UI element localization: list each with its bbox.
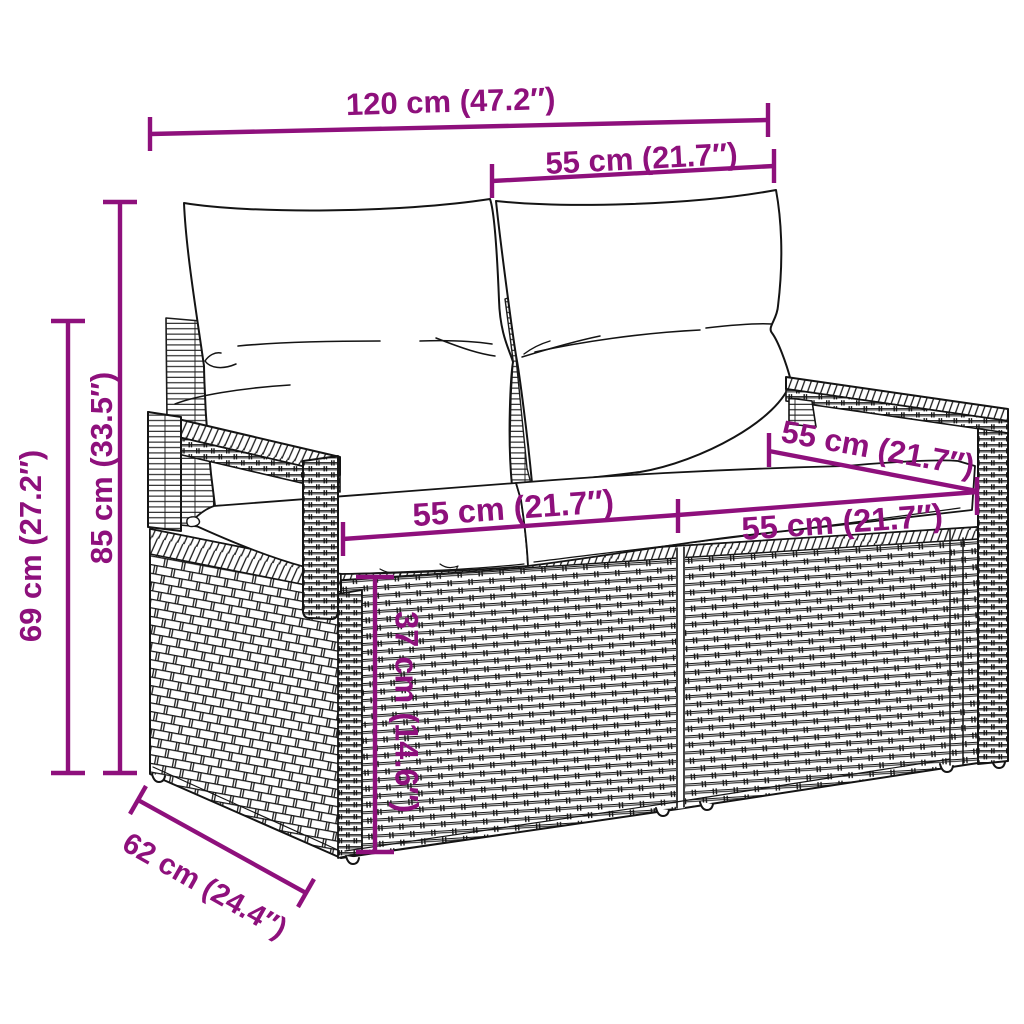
svg-text:120 cm (47.2″): 120 cm (47.2″) [345, 81, 556, 122]
svg-text:37 cm (14.6″): 37 cm (14.6″) [389, 611, 425, 813]
svg-text:85 cm (33.5″): 85 cm (33.5″) [84, 372, 119, 564]
svg-text:69 cm (27.2″): 69 cm (27.2″) [13, 450, 48, 642]
